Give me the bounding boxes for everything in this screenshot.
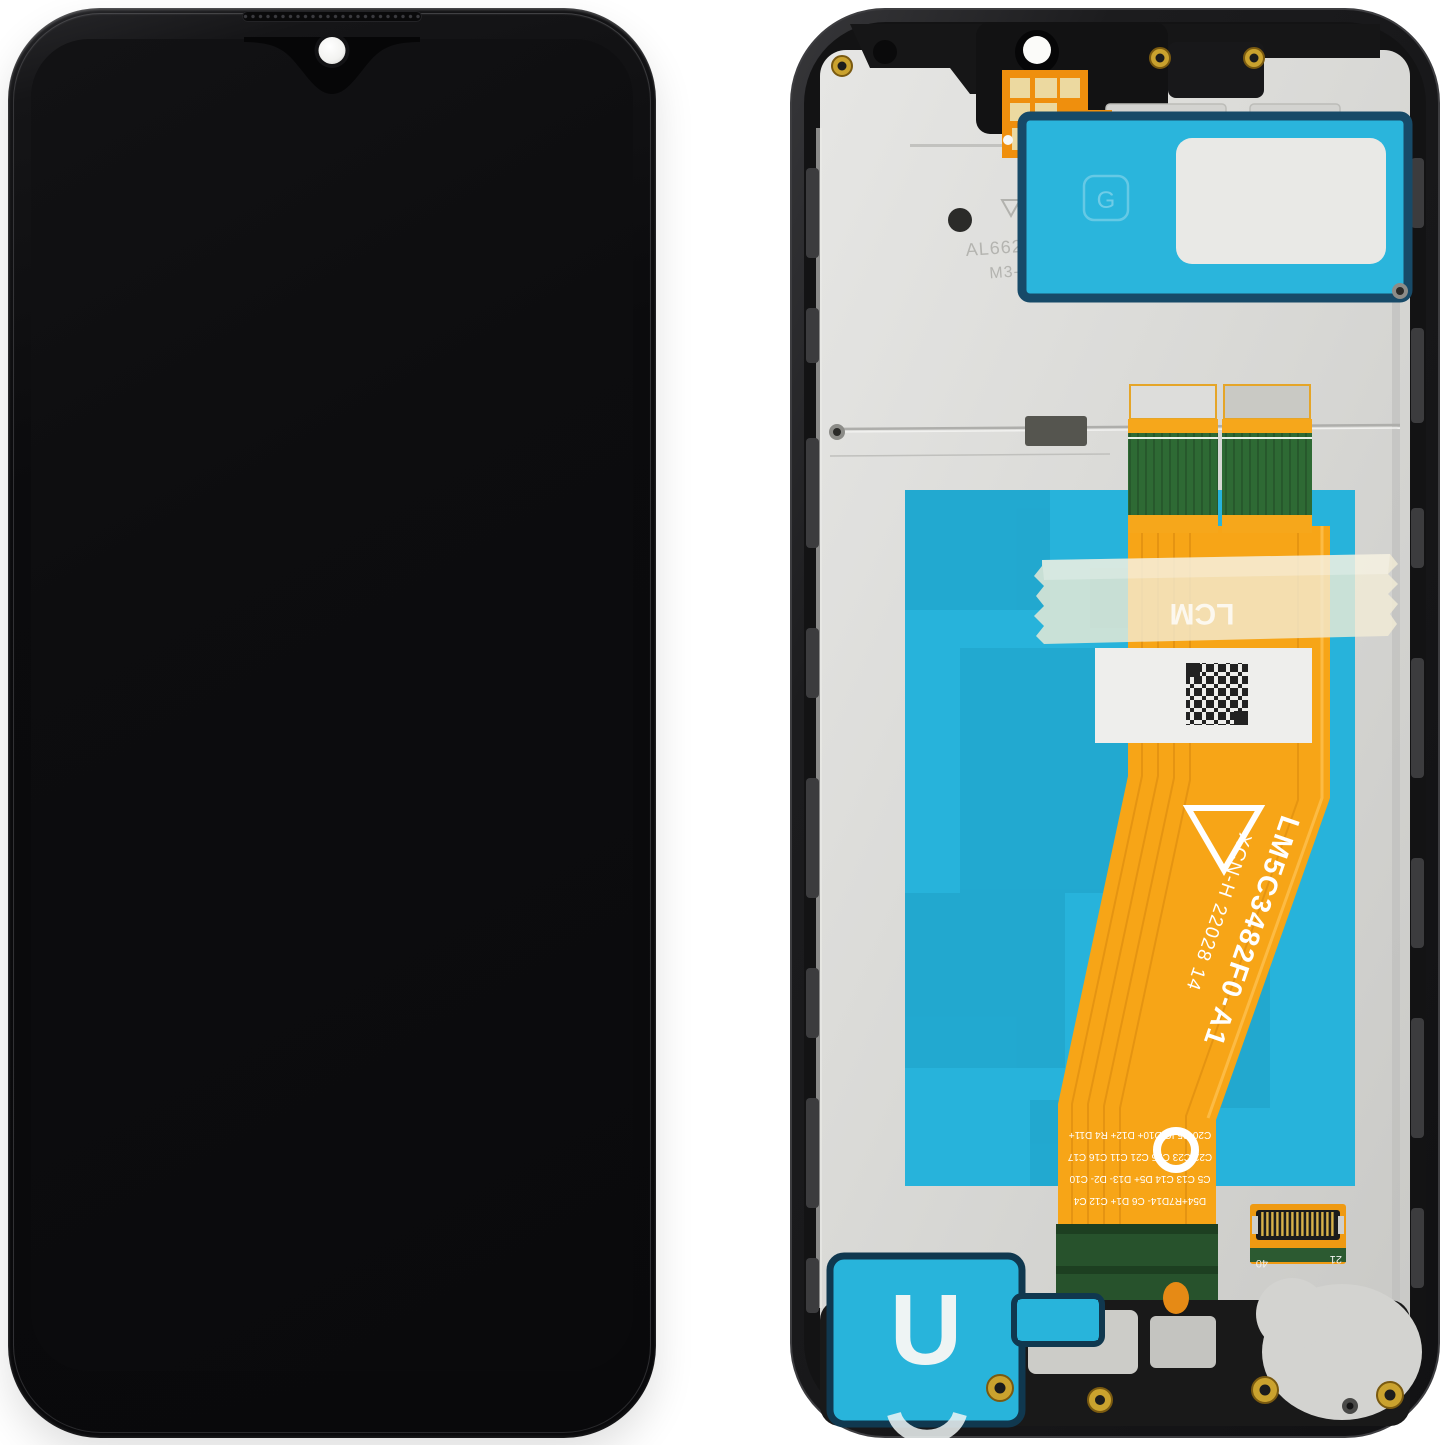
lcm-text: LCM: [1170, 597, 1235, 630]
shield-mesh-patch: [1025, 416, 1087, 446]
adhesive-cutout: [1176, 138, 1386, 264]
display-assembly-front: [8, 8, 656, 1438]
g-logo-mark: G: [1097, 187, 1116, 214]
screw-icon: [1088, 1388, 1112, 1412]
rear-camera-hole-icon: [1023, 36, 1051, 64]
front-screen-glass: [31, 39, 633, 1371]
flex-hole: [1003, 135, 1013, 145]
screw-icon: [832, 56, 852, 76]
svg-text:D54+R7D14- C6 D1+ C12 C4: D54+R7D14- C6 D1+ C12 C4: [1073, 1195, 1206, 1206]
mic-foam-dot: [948, 208, 972, 232]
screw-icon: [1252, 1377, 1278, 1403]
lcd-flex-ribbon-right: [1222, 385, 1312, 533]
svg-text:C20 R5 IC D10+ D12+ R4 D11+: C20 R5 IC D10+ D12+ R4 D11+: [1069, 1129, 1212, 1140]
board-connector: 40 21: [1250, 1204, 1346, 1269]
connector-pin-number-left: 40: [1256, 1257, 1268, 1269]
screw-icon: [1377, 1382, 1403, 1408]
flex-stiffener: [1056, 1224, 1218, 1300]
svg-text:C22 C23 C15 C21 C11 C16 C17: C22 C23 C15 C21 C11 C16 C17: [1067, 1151, 1212, 1162]
screw-icon: [1150, 48, 1170, 68]
screw-icon: [1244, 48, 1264, 68]
screw-icon: [1342, 1398, 1358, 1414]
connector-pin-number-right: 21: [1330, 1253, 1342, 1265]
sensor-hole-icon: [873, 40, 897, 64]
u-letter-text: U: [890, 1274, 962, 1386]
display-assembly-back: AL6626 M3-1V0 G: [790, 8, 1440, 1438]
adhesive-sticker-top: G: [1022, 116, 1408, 298]
qr-label: [1095, 648, 1312, 743]
orange-seal-dot: [1163, 1282, 1189, 1314]
plate-right-ridge: [1392, 128, 1400, 1308]
front-camera-icon: [319, 37, 346, 64]
connector-pin-row: [1260, 1212, 1336, 1238]
product-photo-phone-display-assembly: AL6626 M3-1V0 G: [0, 0, 1445, 1445]
screw-icon: [987, 1375, 1013, 1401]
lcd-flex-ribbon-left: [1128, 385, 1218, 533]
earpiece-grille-icon: [242, 11, 422, 22]
svg-text:C5 C13 C14 D5+ D13- D2- C10: C5 C13 C14 D5+ D13- D2- C10: [1069, 1173, 1210, 1184]
